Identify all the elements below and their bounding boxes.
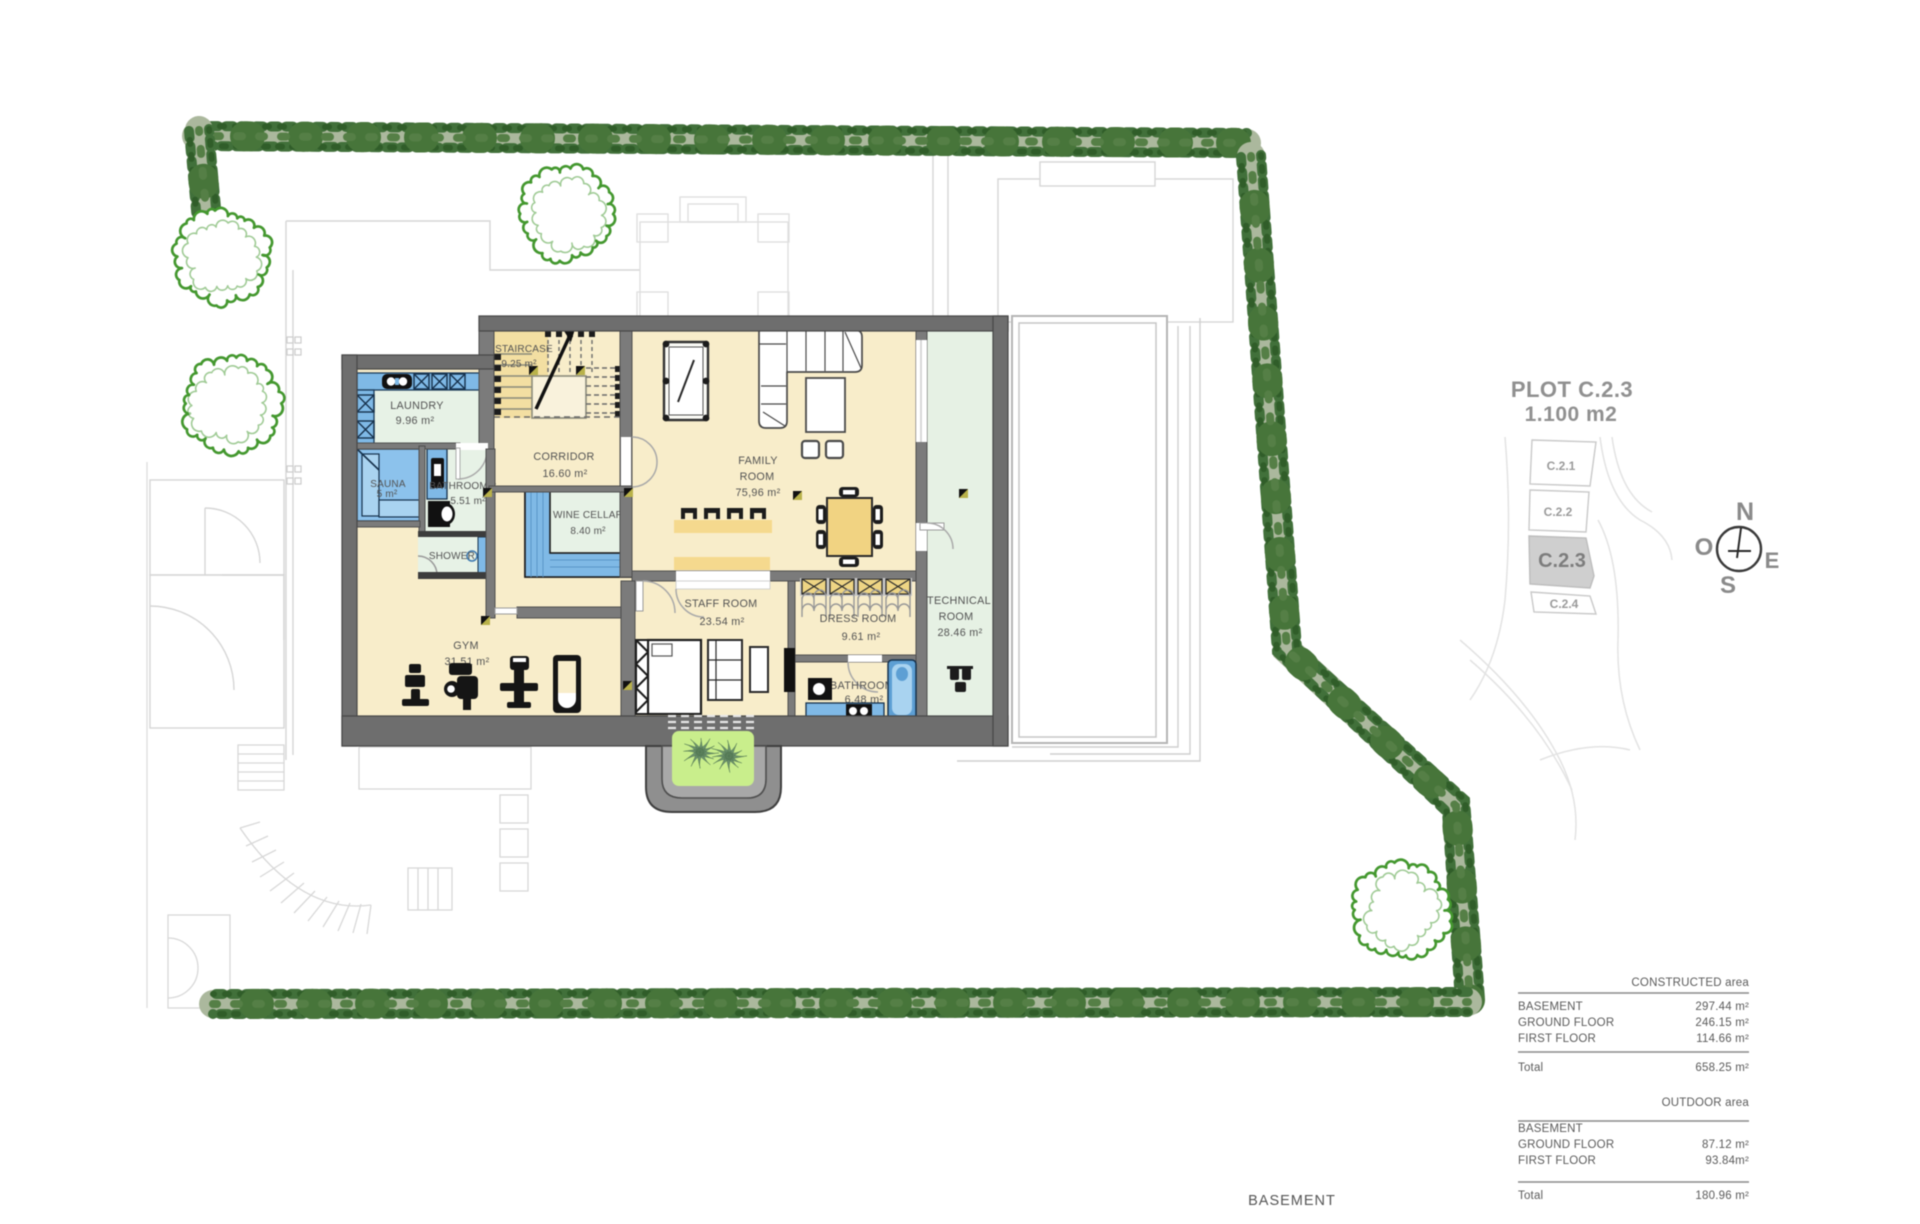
svg-text:BASEMENT: BASEMENT [1518, 1123, 1583, 1135]
svg-text:C.2.1: C.2.1 [1547, 459, 1576, 473]
svg-text:8.40 m²: 8.40 m² [570, 526, 606, 537]
svg-text:93.84m²: 93.84m² [1705, 1155, 1749, 1167]
svg-text:658.25 m²: 658.25 m² [1695, 1062, 1749, 1074]
svg-text:246.15 m²: 246.15 m² [1695, 1017, 1749, 1029]
svg-text:S: S [1720, 572, 1736, 599]
svg-text:LAUNDRY: LAUNDRY [390, 400, 444, 412]
svg-text:87.12 m²: 87.12 m² [1702, 1139, 1749, 1151]
svg-text:CORRIDOR: CORRIDOR [533, 451, 594, 463]
svg-text:ROOM: ROOM [740, 471, 775, 483]
svg-text:C.2.4: C.2.4 [1550, 597, 1579, 611]
svg-text:Total: Total [1518, 1062, 1543, 1074]
svg-text:GROUND FLOOR: GROUND FLOOR [1518, 1017, 1614, 1029]
svg-text:297.44 m²: 297.44 m² [1695, 1001, 1749, 1013]
svg-text:28.46 m²: 28.46 m² [937, 627, 982, 639]
svg-text:OUTDOOR area: OUTDOOR area [1662, 1097, 1750, 1109]
svg-text:FIRST FLOOR: FIRST FLOOR [1518, 1033, 1596, 1045]
svg-text:DRESS ROOM: DRESS ROOM [820, 613, 897, 625]
svg-text:E: E [1765, 548, 1780, 573]
svg-text:C.2.3: C.2.3 [1538, 550, 1586, 572]
svg-text:O: O [1695, 534, 1714, 561]
svg-text:5 m²: 5 m² [377, 489, 398, 500]
svg-text:BATHROOM: BATHROOM [830, 680, 894, 692]
svg-text:N: N [1736, 498, 1754, 526]
svg-text:CONSTRUCTED area: CONSTRUCTED area [1631, 977, 1749, 989]
svg-text:GROUND FLOOR: GROUND FLOOR [1518, 1139, 1614, 1151]
svg-text:BASEMENT: BASEMENT [1518, 1001, 1583, 1013]
svg-text:FIRST FLOOR: FIRST FLOOR [1518, 1155, 1596, 1167]
svg-text:9.96 m²: 9.96 m² [396, 415, 435, 427]
svg-text:16.60 m²: 16.60 m² [542, 468, 587, 480]
svg-text:5.51 m²: 5.51 m² [450, 496, 486, 507]
svg-text:FAMILY: FAMILY [738, 455, 777, 467]
svg-text:SHOWER: SHOWER [429, 551, 475, 562]
svg-text:BASEMENT: BASEMENT [1248, 1193, 1336, 1209]
svg-text:PLOT C.2.3: PLOT C.2.3 [1511, 377, 1633, 402]
svg-text:WINE CELLAR: WINE CELLAR [553, 510, 623, 521]
svg-text:TECHNICAL: TECHNICAL [927, 595, 991, 607]
svg-text:STAIRCASE: STAIRCASE [495, 344, 553, 355]
svg-text:C.2.2: C.2.2 [1544, 505, 1573, 519]
svg-text:1.100 m2: 1.100 m2 [1525, 403, 1618, 426]
svg-text:180.96 m²: 180.96 m² [1695, 1190, 1749, 1202]
svg-text:GYM: GYM [453, 640, 479, 652]
svg-text:Total: Total [1518, 1190, 1543, 1202]
svg-text:23.54 m²: 23.54 m² [699, 616, 744, 628]
svg-text:75,96 m²: 75,96 m² [735, 487, 780, 499]
svg-text:ROOM: ROOM [939, 611, 974, 623]
svg-text:STAFF ROOM: STAFF ROOM [685, 598, 758, 610]
svg-text:9.25 m²: 9.25 m² [501, 359, 537, 370]
svg-text:9.61 m²: 9.61 m² [842, 631, 881, 643]
svg-text:114.66 m²: 114.66 m² [1696, 1033, 1749, 1045]
